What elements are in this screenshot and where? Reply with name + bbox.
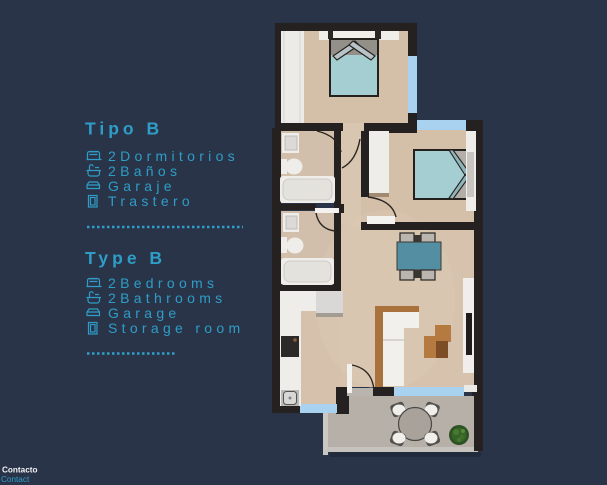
svg-text:2Bedrooms: 2Bedrooms	[108, 275, 218, 291]
svg-text:2Dormitorios: 2Dormitorios	[108, 148, 239, 164]
svg-text:Tipo B: Tipo B	[85, 119, 163, 139]
svg-text:2Bathrooms: 2Bathrooms	[108, 290, 226, 306]
svg-text:Garaje: Garaje	[108, 178, 176, 194]
svg-text:Garage: Garage	[108, 305, 181, 321]
svg-text:Type B: Type B	[85, 248, 166, 268]
svg-text:Storage room: Storage room	[108, 320, 244, 336]
svg-text:2Baños: 2Baños	[108, 163, 181, 179]
svg-text:Contact: Contact	[1, 475, 30, 484]
svg-text:Trastero: Trastero	[108, 193, 194, 209]
svg-text:Contacto: Contacto	[2, 466, 37, 475]
